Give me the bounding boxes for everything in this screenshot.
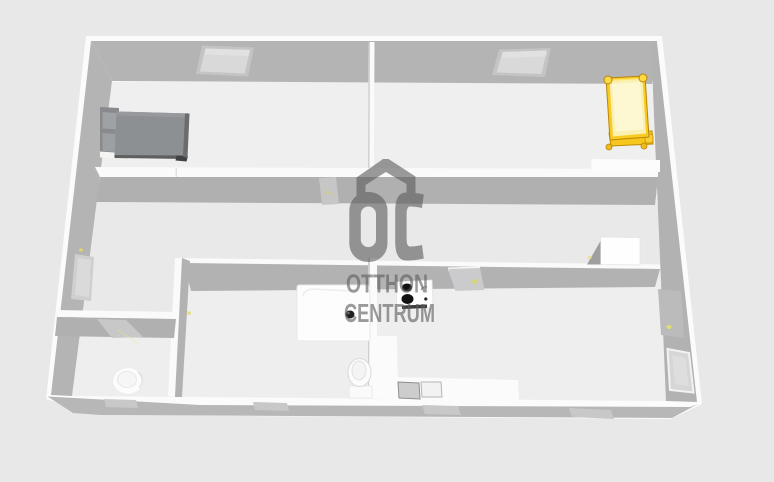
svg-text:CENTRUM: CENTRUM (344, 300, 435, 328)
svg-text:OTTHON: OTTHON (346, 271, 428, 299)
